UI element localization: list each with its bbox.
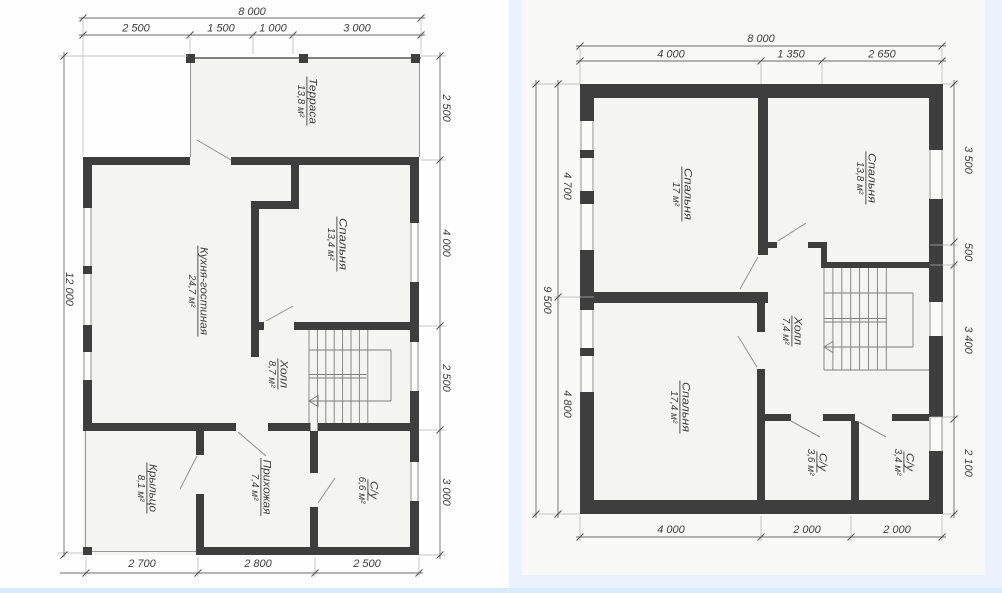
svg-text:Спальня: Спальня (866, 153, 878, 203)
svg-text:4 000: 4 000 (657, 49, 685, 61)
svg-text:13,8 м²: 13,8 м² (854, 162, 865, 195)
svg-text:3 000: 3 000 (440, 478, 452, 506)
svg-text:6,6 м²: 6,6 м² (356, 477, 367, 505)
svg-text:С/у: С/у (817, 453, 829, 473)
svg-text:2 500: 2 500 (440, 93, 452, 122)
svg-text:1 000: 1 000 (259, 23, 287, 35)
svg-text:2 500: 2 500 (440, 363, 452, 392)
svg-text:Холл: Холл (792, 316, 804, 345)
svg-text:Спальня: Спальня (680, 382, 692, 432)
svg-text:13,8 м²: 13,8 м² (295, 85, 306, 118)
svg-text:1 500: 1 500 (207, 23, 235, 35)
svg-text:Кухня-гостиная: Кухня-гостиная (198, 247, 210, 335)
svg-text:Крыльцо: Крыльцо (147, 464, 159, 512)
svg-text:3 000: 3 000 (343, 23, 371, 35)
svg-text:2 650: 2 650 (867, 49, 896, 61)
svg-text:2 500: 2 500 (352, 558, 381, 570)
svg-text:500: 500 (962, 243, 974, 262)
svg-text:17 м²: 17 м² (670, 182, 681, 207)
svg-text:Прихожая: Прихожая (261, 460, 273, 515)
svg-text:3 500: 3 500 (962, 146, 974, 174)
svg-text:4 800: 4 800 (561, 390, 573, 418)
svg-text:1 350: 1 350 (777, 49, 805, 61)
svg-text:7,4 м²: 7,4 м² (780, 318, 791, 346)
svg-text:3,6 м²: 3,6 м² (805, 449, 816, 477)
svg-text:Спальня: Спальня (337, 218, 349, 270)
svg-text:С/у: С/у (368, 481, 380, 501)
svg-text:8 000: 8 000 (747, 33, 775, 45)
svg-text:8,1 м²: 8,1 м² (135, 475, 146, 503)
svg-text:8 000: 8 000 (238, 6, 266, 18)
svg-text:3,4 м²: 3,4 м² (892, 449, 903, 477)
svg-text:17,4 м²: 17,4 м² (668, 391, 679, 424)
svg-text:9 500: 9 500 (541, 286, 553, 314)
svg-text:2 000: 2 000 (792, 524, 821, 536)
svg-text:13,4 м²: 13,4 м² (325, 228, 336, 261)
svg-text:2 100: 2 100 (962, 448, 974, 477)
svg-text:24,7 м²: 24,7 м² (186, 274, 197, 308)
svg-text:2 700: 2 700 (127, 558, 156, 570)
svg-text:Холл: Холл (278, 359, 290, 388)
svg-text:3 400: 3 400 (962, 326, 974, 354)
svg-text:2 000: 2 000 (882, 524, 911, 536)
svg-text:2 800: 2 800 (243, 558, 272, 570)
svg-text:Спальня: Спальня (682, 168, 694, 220)
svg-text:12 000: 12 000 (63, 272, 75, 307)
svg-text:4 000: 4 000 (657, 524, 685, 536)
svg-text:С/у: С/у (904, 453, 916, 473)
svg-text:7,4 м²: 7,4 м² (249, 474, 260, 502)
svg-text:2 500: 2 500 (121, 23, 150, 35)
svg-text:4 000: 4 000 (440, 229, 452, 257)
svg-text:8,7 м²: 8,7 м² (266, 361, 277, 389)
svg-text:Терраса: Терраса (307, 78, 319, 124)
svg-text:4 700: 4 700 (561, 172, 573, 200)
